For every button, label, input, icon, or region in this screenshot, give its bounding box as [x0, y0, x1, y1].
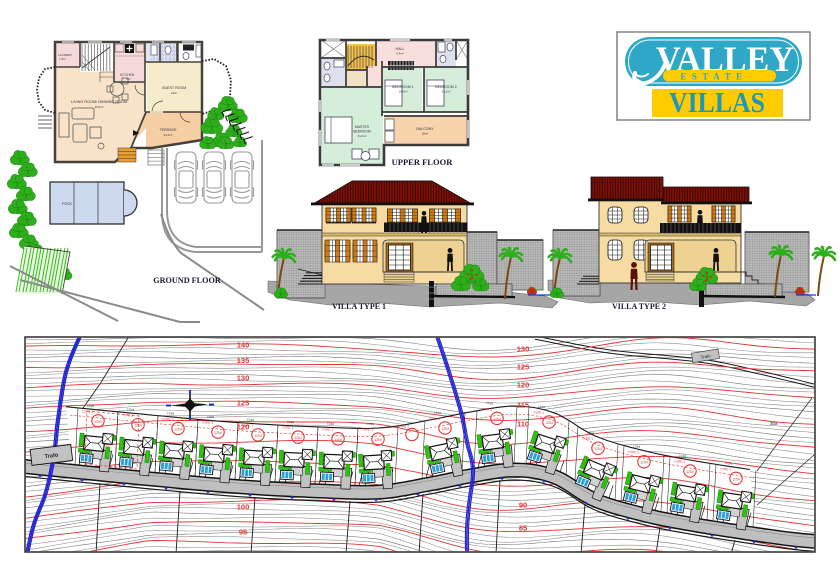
svg-text:123/4: 123/4: [287, 420, 295, 425]
svg-text:1254: 1254: [640, 461, 648, 465]
svg-text:95: 95: [239, 528, 247, 537]
svg-text:123/4: 123/4: [587, 431, 595, 436]
svg-text:120: 120: [237, 423, 250, 432]
svg-text:30a: 30a: [770, 421, 778, 426]
svg-text:123/4: 123/4: [127, 407, 135, 412]
svg-text:BALCONY: BALCONY: [416, 127, 434, 131]
svg-text:GROUND FLOOR: GROUND FLOOR: [153, 276, 221, 285]
svg-text:VILLA TYPE 1: VILLA TYPE 1: [332, 302, 386, 311]
svg-text:123/4: 123/4: [207, 415, 215, 420]
svg-text:1254: 1254: [493, 417, 501, 421]
svg-text:TYPE 1: TYPE 1: [582, 437, 593, 441]
svg-text:123/4: 123/4: [538, 404, 546, 409]
svg-text:24,4m²: 24,4m²: [164, 133, 173, 137]
svg-text:7m²: 7m²: [126, 77, 131, 81]
svg-text:1254: 1254: [94, 420, 102, 424]
svg-text:TYPE 1: TYPE 1: [628, 451, 639, 455]
svg-text:120: 120: [517, 381, 530, 390]
svg-text:115: 115: [517, 401, 529, 410]
svg-text:125: 125: [517, 363, 530, 372]
svg-text:TYPE 1: TYPE 1: [533, 411, 544, 415]
svg-text:1254: 1254: [374, 438, 382, 442]
svg-text:45,5m²: 45,5m²: [95, 105, 104, 109]
svg-text:23m²: 23m²: [171, 91, 177, 95]
svg-text:7,3m²: 7,3m²: [59, 57, 66, 61]
svg-text:TYPE 1: TYPE 1: [82, 410, 93, 414]
svg-text:123/4: 123/4: [725, 461, 733, 466]
svg-text:TYPE 1: TYPE 1: [322, 428, 333, 432]
svg-text:15,2m²: 15,2m²: [442, 90, 451, 94]
svg-text:85: 85: [519, 524, 527, 533]
svg-text:1254: 1254: [254, 434, 262, 438]
svg-text:1254: 1254: [594, 447, 602, 451]
svg-text:GUEST ROOM: GUEST ROOM: [162, 86, 187, 90]
svg-text:100: 100: [237, 503, 250, 512]
svg-text:HALL: HALL: [396, 47, 405, 51]
svg-text:VILLA TYPE 2: VILLA TYPE 2: [612, 302, 666, 311]
svg-text:1254: 1254: [686, 470, 694, 474]
svg-text:123/4: 123/4: [87, 403, 95, 408]
svg-text:123/4: 123/4: [367, 422, 375, 427]
svg-text:90: 90: [519, 501, 527, 510]
svg-text:1254: 1254: [732, 477, 740, 481]
svg-text:15,6m²: 15,6m²: [399, 90, 408, 94]
svg-text:KITCHEN: KITCHEN: [120, 73, 135, 77]
svg-text:BEDROOM 2: BEDROOM 2: [435, 85, 457, 89]
svg-text:ESTATE: ESTATE: [680, 72, 747, 82]
svg-text:TYPE 1: TYPE 1: [720, 467, 731, 471]
svg-text:1254: 1254: [441, 427, 449, 431]
svg-text:POOL: POOL: [62, 202, 73, 206]
svg-text:123/4: 123/4: [327, 421, 335, 426]
svg-text:TYPE 1: TYPE 1: [202, 421, 213, 425]
svg-text:135: 135: [237, 356, 250, 365]
svg-text:BEDROOM: BEDROOM: [353, 130, 371, 134]
svg-text:1254: 1254: [134, 424, 142, 428]
svg-text:1254: 1254: [334, 438, 342, 442]
svg-text:TYPE 1: TYPE 1: [282, 426, 293, 430]
svg-text:123/4: 123/4: [167, 411, 175, 416]
svg-text:110: 110: [517, 420, 529, 429]
svg-text:UPPER FLOOR: UPPER FLOOR: [392, 157, 454, 167]
svg-text:123/4: 123/4: [486, 401, 494, 406]
svg-text:9,4m²: 9,4m²: [396, 52, 403, 56]
svg-text:1254: 1254: [174, 428, 182, 432]
svg-text:125: 125: [237, 399, 250, 408]
svg-text:123/4: 123/4: [633, 444, 641, 449]
svg-text:31,2m²: 31,2m²: [358, 134, 367, 138]
svg-text:TYPE 1: TYPE 1: [162, 418, 173, 422]
svg-text:20m²: 20m²: [422, 132, 428, 136]
svg-text:123/4: 123/4: [434, 410, 442, 415]
svg-text:123/4: 123/4: [247, 417, 255, 422]
svg-text:LIVING ROOM/ DINNING ROOM: LIVING ROOM/ DINNING ROOM: [71, 100, 127, 104]
svg-text:VILLAS: VILLAS: [669, 88, 765, 119]
svg-text:TYPE 1: TYPE 1: [362, 428, 373, 432]
svg-text:TYPE 1: TYPE 1: [398, 425, 409, 429]
svg-text:1254: 1254: [545, 421, 553, 425]
svg-text:1254: 1254: [214, 431, 222, 435]
svg-text:TYPE 1: TYPE 1: [429, 417, 440, 421]
svg-text:140: 140: [237, 341, 250, 350]
svg-text:TERRACE: TERRACE: [159, 128, 177, 132]
svg-text:MASTER: MASTER: [355, 125, 370, 129]
svg-text:TYPE 1: TYPE 1: [674, 460, 685, 464]
svg-text:BEDROOM 1: BEDROOM 1: [392, 85, 414, 89]
svg-text:123/4: 123/4: [679, 453, 687, 458]
svg-text:130: 130: [517, 345, 530, 354]
svg-text:130: 130: [237, 374, 250, 383]
svg-text:TYPE 1: TYPE 1: [481, 407, 492, 411]
svg-text:LAUNDRY: LAUNDRY: [58, 53, 72, 57]
svg-text:1254: 1254: [294, 436, 302, 440]
